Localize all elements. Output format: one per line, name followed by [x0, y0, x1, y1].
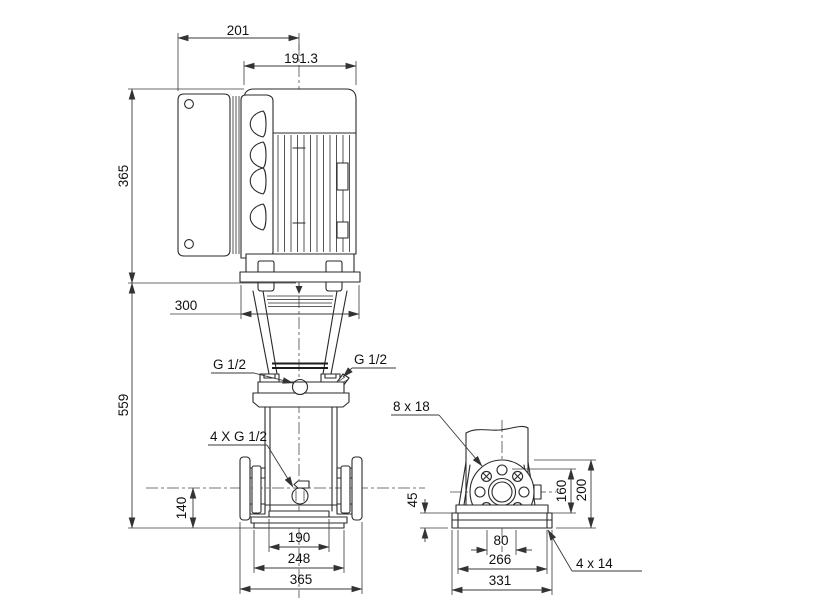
coupling-guard-lower	[272, 364, 328, 369]
motor-flange-block	[246, 254, 354, 272]
dim-base-mid: 248	[288, 551, 311, 566]
stool-nut-right	[326, 282, 342, 291]
dim-base-len-inner: 266	[489, 552, 512, 567]
vent-slot-lower	[337, 222, 348, 238]
control-box	[178, 94, 230, 256]
dim-box-to-center: 201	[227, 23, 250, 38]
dim-port-to-port: 365	[290, 572, 313, 587]
label-vent-right: G 1/2	[354, 352, 387, 367]
gauge-tap	[534, 485, 541, 499]
drain-plug	[292, 481, 309, 504]
label-vent-left: G 1/2	[213, 357, 246, 372]
pump-dimensional-drawing: 201 191.3 365 559 300 1	[0, 0, 835, 611]
dim-port-center-height: 140	[174, 497, 189, 520]
coupling-pointer-arrow	[296, 286, 303, 294]
stool-foot-right-cap	[325, 374, 336, 378]
side-view: 8 x 18 45 160 200 80	[391, 399, 642, 595]
dim-base-inner: 190	[288, 530, 311, 545]
stool-top-plate	[240, 272, 360, 282]
dim-flange-mid: 160	[554, 480, 569, 503]
label-foundation-holes: 4 x 14	[576, 556, 613, 571]
dim-base-len-outer: 331	[489, 573, 512, 588]
motor-stool-legs	[253, 291, 347, 374]
dim-base-height: 45	[405, 492, 420, 507]
dim-stool-width: 300	[175, 298, 198, 313]
dim-bolt-spacing: 80	[493, 533, 508, 548]
coupling-guard-upper	[267, 296, 333, 307]
dim-motor-width: 191.3	[284, 51, 318, 66]
flange-left	[240, 457, 265, 520]
vent-slot-upper	[337, 163, 348, 190]
label-flange-holes: 8 x 18	[393, 399, 430, 414]
side-base	[452, 505, 552, 528]
label-plugs: 4 X G 1/2	[210, 429, 267, 444]
dim-motor-height: 365	[116, 165, 131, 188]
front-view: 201 191.3 365 559 300 1	[116, 23, 425, 598]
pump-head-body	[253, 393, 349, 407]
dim-pump-height: 559	[116, 394, 131, 417]
heatsink-lines	[233, 96, 239, 254]
drawing-canvas: 201 191.3 365 559 300 1	[0, 0, 835, 611]
dim-flange-top: 200	[574, 479, 589, 502]
flange-right	[337, 457, 362, 520]
